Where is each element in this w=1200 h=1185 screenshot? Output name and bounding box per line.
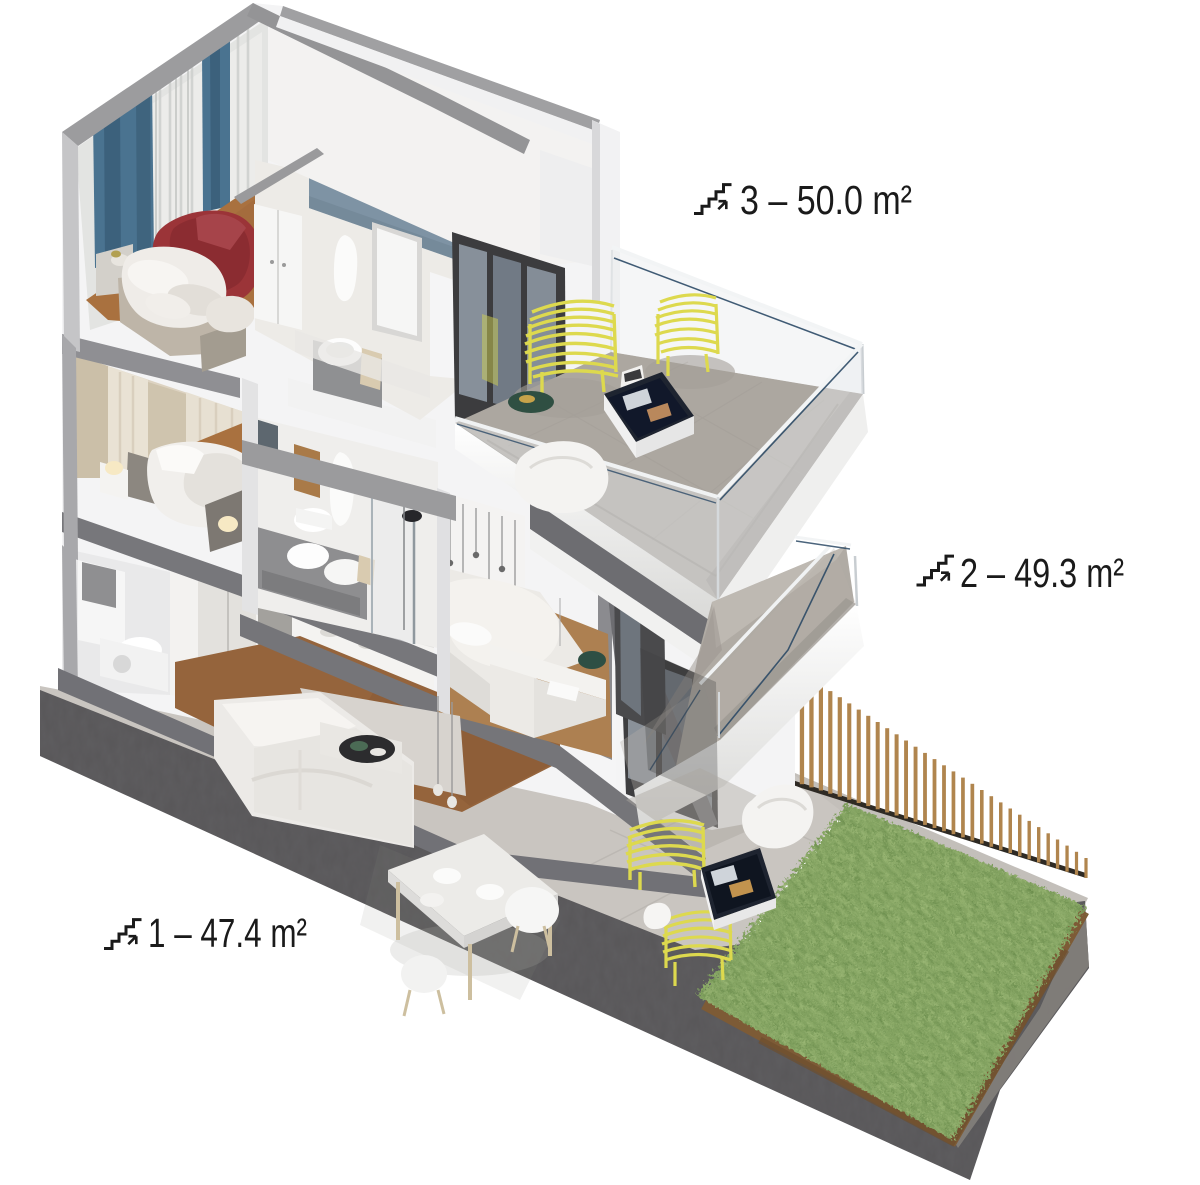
svg-text:1 – 47.4 m²: 1 – 47.4 m² <box>148 910 307 956</box>
svg-text:2 – 49.3 m²: 2 – 49.3 m² <box>960 550 1124 596</box>
svg-text:3 – 50.0 m²: 3 – 50.0 m² <box>740 177 912 223</box>
